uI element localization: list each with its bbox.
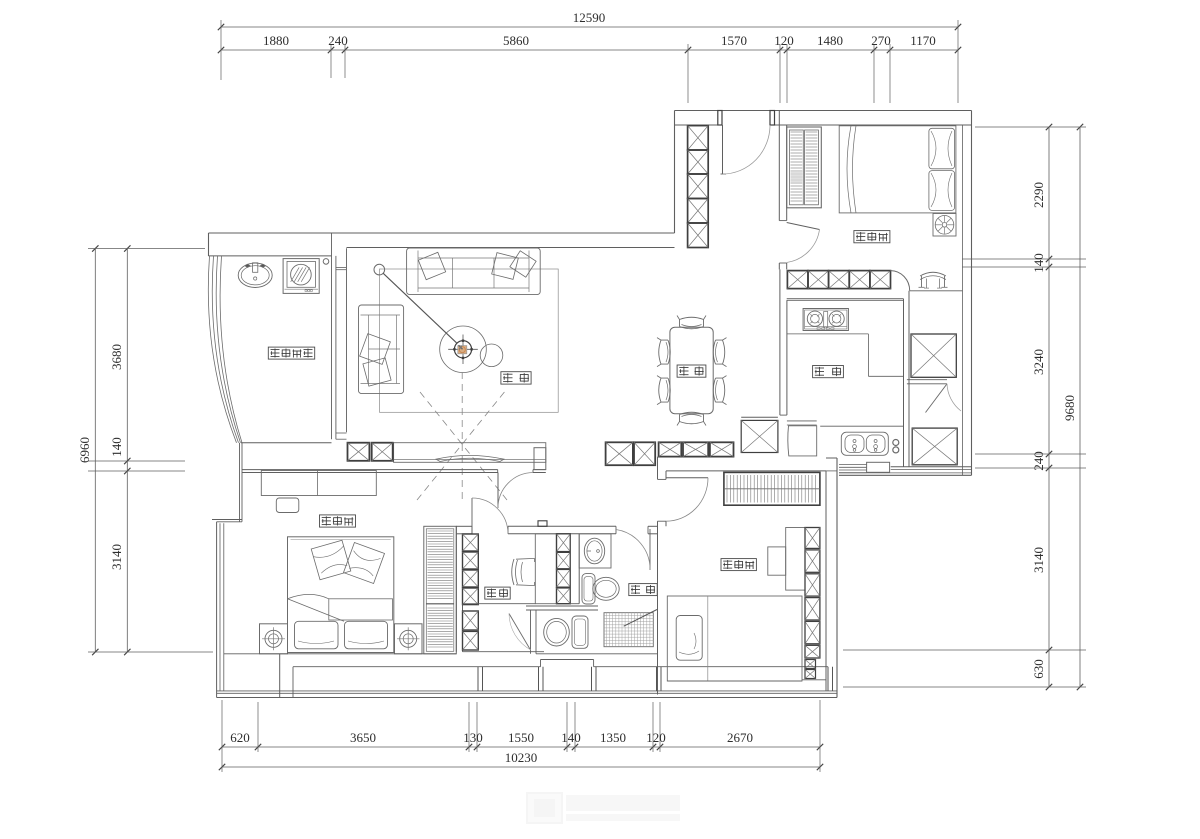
svg-text:240: 240 [1031, 451, 1046, 471]
svg-text:9680: 9680 [1062, 395, 1077, 421]
svg-text:140: 140 [561, 730, 581, 745]
svg-text:140: 140 [1031, 253, 1046, 273]
svg-text:1170: 1170 [910, 33, 936, 48]
svg-text:630: 630 [1031, 659, 1046, 679]
svg-text:1880: 1880 [263, 33, 289, 48]
svg-text:3650: 3650 [350, 730, 376, 745]
svg-text:3680: 3680 [109, 344, 124, 370]
svg-text:1350: 1350 [600, 730, 626, 745]
svg-text:10230: 10230 [505, 750, 538, 765]
svg-text:5860: 5860 [503, 33, 529, 48]
svg-text:1550: 1550 [508, 730, 534, 745]
svg-text:2290: 2290 [1031, 182, 1046, 208]
svg-text:12590: 12590 [573, 10, 606, 25]
svg-text:120: 120 [646, 730, 666, 745]
svg-text:240: 240 [328, 33, 348, 48]
svg-text:1480: 1480 [817, 33, 843, 48]
svg-text:3140: 3140 [109, 544, 124, 570]
svg-text:2670: 2670 [727, 730, 753, 745]
svg-text:3240: 3240 [1031, 349, 1046, 375]
svg-text:120: 120 [774, 33, 794, 48]
svg-text:3140: 3140 [1031, 547, 1046, 573]
svg-text:1570: 1570 [721, 33, 747, 48]
svg-text:140: 140 [109, 437, 124, 457]
svg-text:130: 130 [463, 730, 483, 745]
svg-text:620: 620 [230, 730, 250, 745]
svg-text:270: 270 [871, 33, 891, 48]
svg-text:6960: 6960 [77, 437, 92, 463]
